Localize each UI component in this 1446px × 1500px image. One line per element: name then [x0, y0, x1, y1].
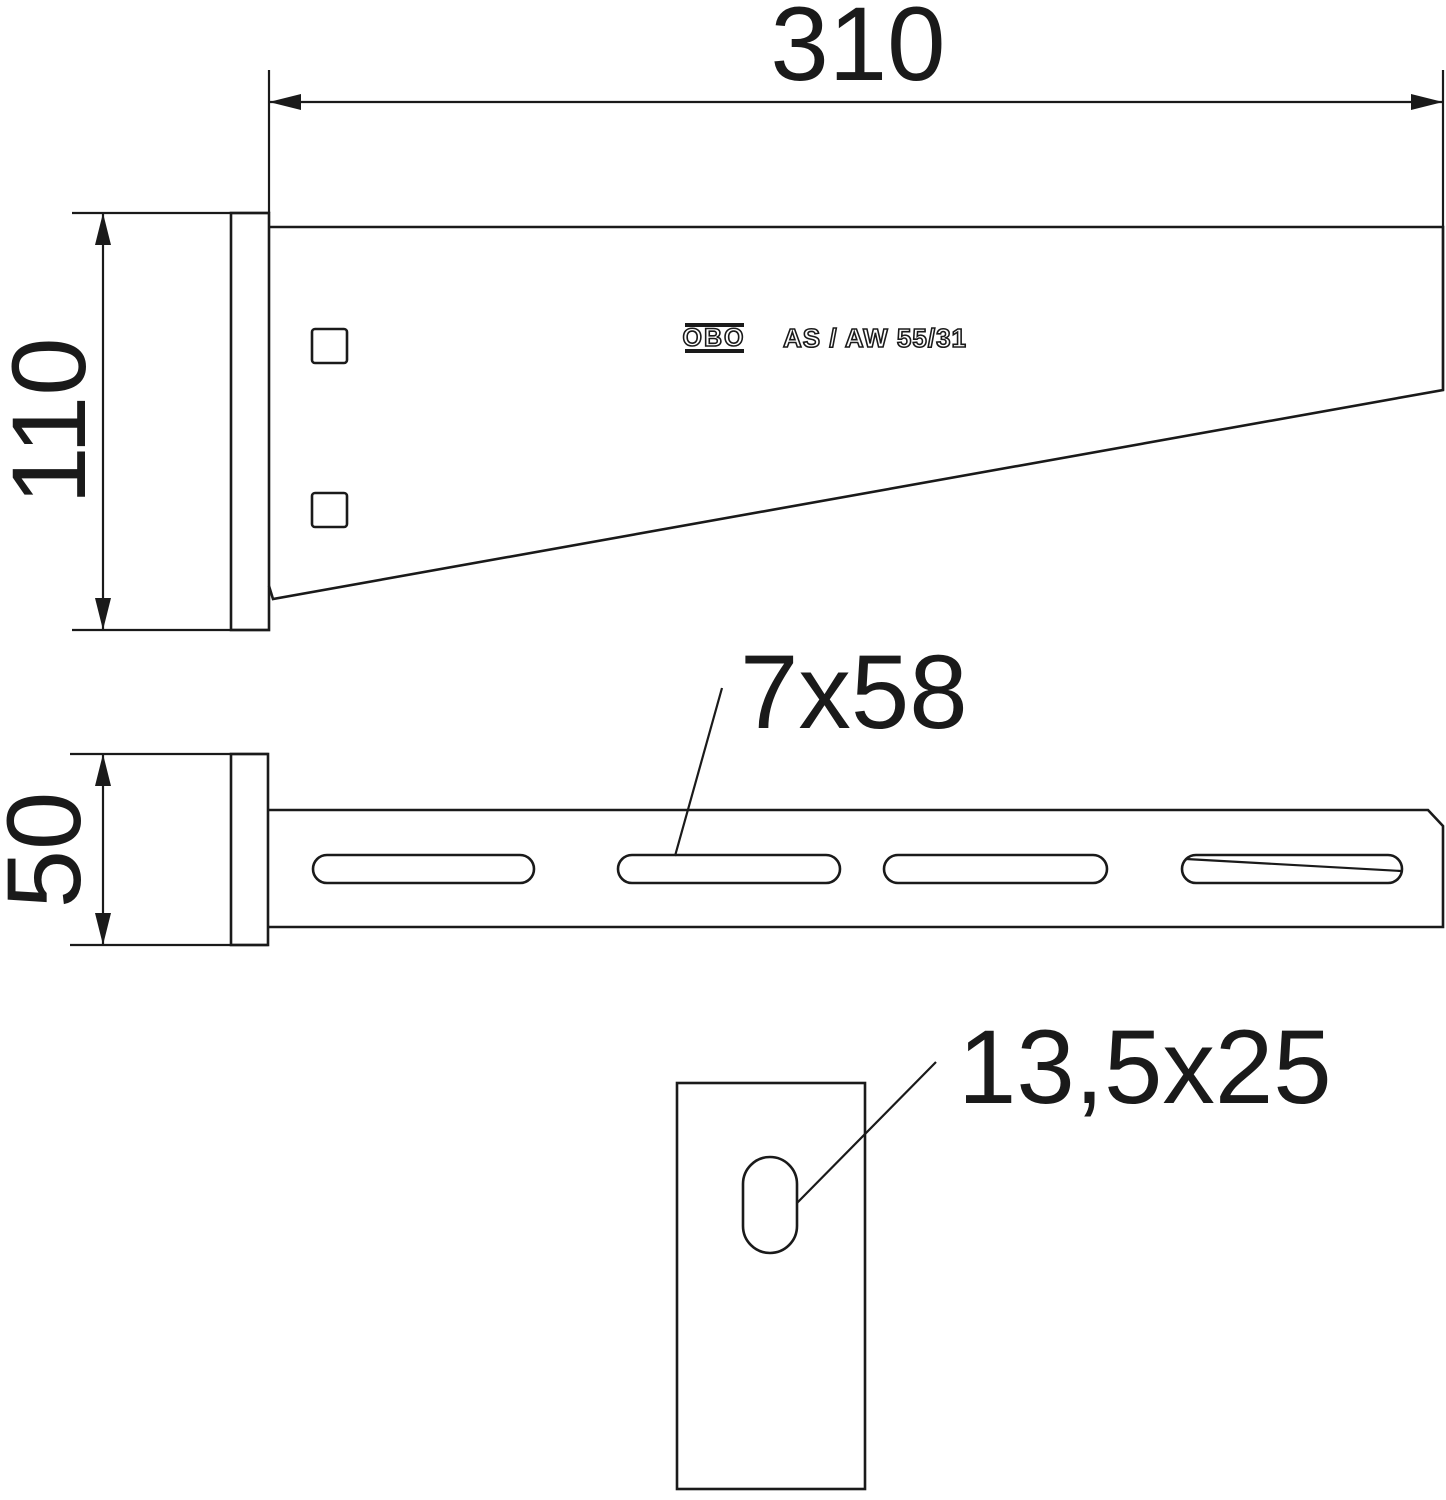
bracket-dimension-drawing: 310 110 OBO AS / AW 55/31 — [0, 0, 1446, 1500]
arm-top-outline — [268, 810, 1443, 927]
slot-4-seen-edge — [1186, 859, 1401, 871]
dim-310-arrow-right — [1411, 94, 1443, 110]
slot-hole-1 — [313, 855, 534, 883]
obo-logo-text: OBO — [683, 324, 746, 352]
anchor-plate-view: 13,5x25 — [677, 1009, 1332, 1489]
wall-plate-side-outline — [231, 213, 269, 630]
product-type-label: AS / AW 55/31 — [783, 323, 967, 353]
square-hole-upper — [312, 329, 347, 363]
anchor-plate-outline — [677, 1083, 865, 1489]
slot-hole-3 — [884, 855, 1107, 883]
arm-side-outline — [269, 227, 1443, 599]
top-view: 50 7x58 — [0, 634, 1443, 945]
dim-310-arrow-left — [269, 94, 301, 110]
slot-callout-leader — [675, 688, 722, 856]
dim-110-arrow-bottom — [95, 598, 111, 630]
dim-50-arrow-top — [95, 754, 111, 786]
anchor-slot-hole — [743, 1157, 797, 1253]
dim-50-label: 50 — [0, 792, 103, 909]
slot-hole-2 — [618, 855, 840, 883]
dim-50-arrow-bottom — [95, 913, 111, 945]
square-hole-lower — [312, 493, 347, 527]
dim-110-arrow-top — [95, 213, 111, 245]
side-view: 310 110 OBO AS / AW 55/31 — [0, 0, 1443, 630]
obo-logo: OBO — [683, 324, 746, 352]
wall-plate-top-outline — [231, 754, 268, 945]
slot-size-label: 7x58 — [740, 634, 968, 751]
technical-drawing-page: 310 110 OBO AS / AW 55/31 — [0, 0, 1446, 1500]
dim-110-label: 110 — [0, 337, 108, 504]
anchor-hole-size-label: 13,5x25 — [958, 1009, 1332, 1126]
dim-310-label: 310 — [770, 0, 945, 103]
